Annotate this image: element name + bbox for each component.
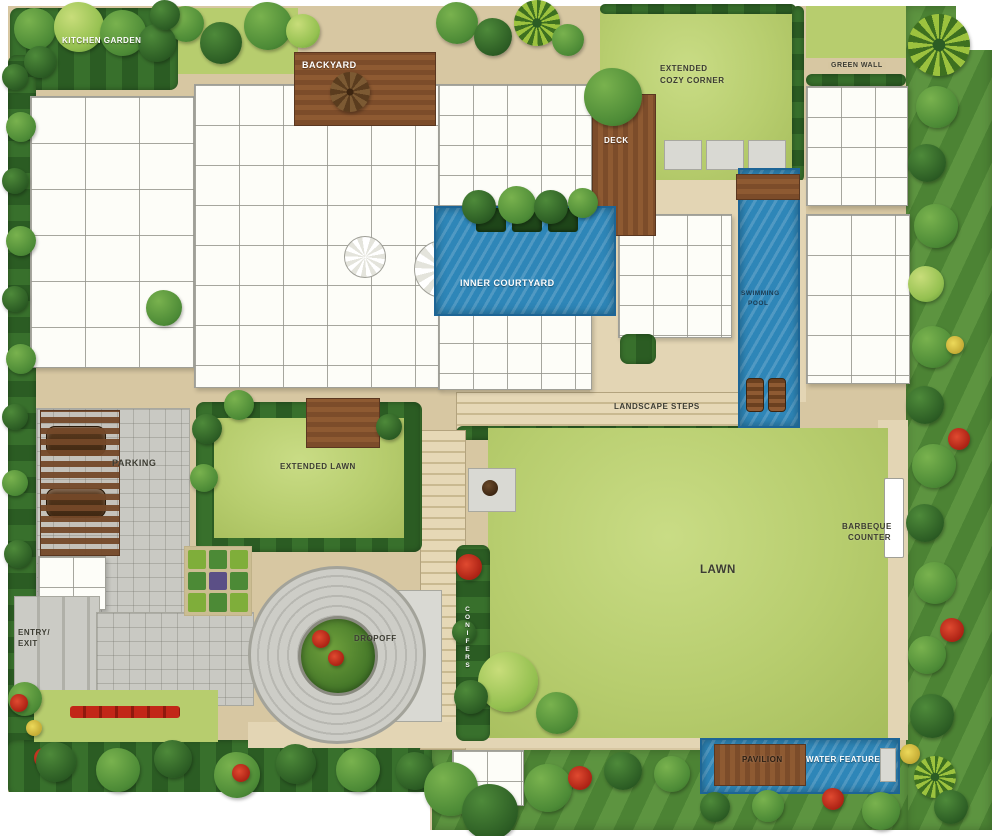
flower-cluster-icon: [328, 650, 344, 666]
flower-cluster-icon: [568, 766, 592, 790]
dropoff-label: DROPOFF: [354, 634, 397, 643]
tree-icon: [524, 764, 572, 812]
barbeque-counter-label: BARBEQUE: [842, 522, 892, 531]
flower-cluster-icon: [232, 764, 250, 782]
tree-icon: [914, 204, 958, 248]
tree-icon: [934, 790, 968, 824]
tree-icon: [36, 742, 76, 782]
tree-icon: [286, 14, 320, 48]
tree-icon: [910, 694, 954, 738]
landscape-steps-label: LANDSCAPE STEPS: [614, 402, 700, 411]
tree-icon: [14, 8, 56, 50]
extended-cozy-corner-label: COZY CORNER: [660, 76, 724, 85]
tree-icon: [336, 748, 380, 792]
vegetation-layer: [0, 0, 1000, 836]
tree-icon: [6, 344, 36, 374]
hedge-strip-label: CONIFERS: [464, 606, 471, 670]
tree-icon: [914, 562, 956, 604]
tree-icon: [908, 144, 946, 182]
parking-label: PARKING: [112, 458, 156, 468]
tree-icon: [604, 752, 642, 790]
tree-icon: [536, 692, 578, 734]
lawn-label: LAWN: [700, 564, 736, 576]
tree-icon: [568, 188, 598, 218]
water-feature-label: WATER FEATURE: [806, 755, 880, 764]
deck-label: DECK: [604, 136, 629, 145]
tree-icon: [146, 290, 182, 326]
barbeque-counter-label: COUNTER: [848, 533, 891, 542]
tree-icon: [436, 2, 478, 44]
tree-icon: [24, 46, 56, 78]
kitchen-garden-label: KITCHEN GARDEN: [62, 36, 141, 45]
tree-icon: [916, 86, 958, 128]
tree-icon: [462, 190, 496, 224]
backyard-label: BACKYARD: [302, 60, 357, 70]
flower-cluster-icon: [948, 428, 970, 450]
tree-icon: [4, 540, 32, 568]
tree-icon: [654, 756, 690, 792]
extended-cozy-corner-label: EXTENDED: [660, 64, 708, 73]
tree-icon: [700, 792, 730, 822]
swimming-pool-label: POOL: [748, 300, 768, 307]
flower-cluster-icon: [940, 618, 964, 642]
tree-icon: [154, 740, 192, 778]
green-wall-label: GREEN WALL: [828, 62, 886, 69]
entry-exit-label: ENTRY/: [18, 628, 50, 637]
tree-icon: [2, 404, 28, 430]
tree-icon: [498, 186, 536, 224]
tree-icon: [862, 792, 900, 830]
tree-icon: [534, 190, 568, 224]
tree-icon: [150, 0, 180, 30]
inner-courtyard-label: INNER COURTYARD: [460, 278, 555, 288]
tree-icon: [376, 414, 402, 440]
tree-icon: [552, 24, 584, 56]
tree-icon: [906, 504, 944, 542]
flower-cluster-icon: [10, 694, 28, 712]
tree-icon: [6, 112, 36, 142]
tree-icon: [190, 464, 218, 492]
extended-lawn-label: EXTENDED LAWN: [280, 462, 356, 471]
swimming-pool-label: SWIMMING: [741, 290, 780, 297]
site-plan: KITCHEN GARDEN BACKYARD EXTENDED COZY CO…: [0, 0, 1000, 836]
tree-icon: [908, 266, 944, 302]
entry-exit-label: EXIT: [18, 639, 38, 648]
flower-cluster-icon: [26, 720, 42, 736]
tree-icon: [200, 22, 242, 64]
flower-cluster-icon: [456, 554, 482, 580]
pavilion-label: PAVILION: [742, 755, 783, 764]
tree-icon: [6, 226, 36, 256]
tree-icon: [224, 390, 254, 420]
tree-icon: [138, 24, 176, 62]
flower-cluster-icon: [312, 630, 330, 648]
tree-icon: [462, 784, 518, 836]
palm-tree-icon: [908, 14, 970, 76]
tree-icon: [584, 68, 642, 126]
tree-icon: [2, 286, 28, 312]
tree-icon: [752, 790, 784, 822]
tree-icon: [2, 168, 28, 194]
tree-icon: [96, 748, 140, 792]
flower-cluster-icon: [946, 336, 964, 354]
tree-icon: [454, 680, 488, 714]
flower-cluster-icon: [822, 788, 844, 810]
tree-icon: [912, 444, 956, 488]
tree-icon: [478, 652, 538, 712]
tree-icon: [330, 72, 370, 112]
flower-cluster-icon: [900, 744, 920, 764]
tree-icon: [192, 414, 222, 444]
tree-icon: [474, 18, 512, 56]
tree-icon: [906, 386, 944, 424]
tree-icon: [244, 2, 292, 50]
tree-icon: [2, 64, 28, 90]
tree-icon: [908, 636, 946, 674]
tree-icon: [276, 744, 316, 784]
tree-icon: [2, 470, 28, 496]
